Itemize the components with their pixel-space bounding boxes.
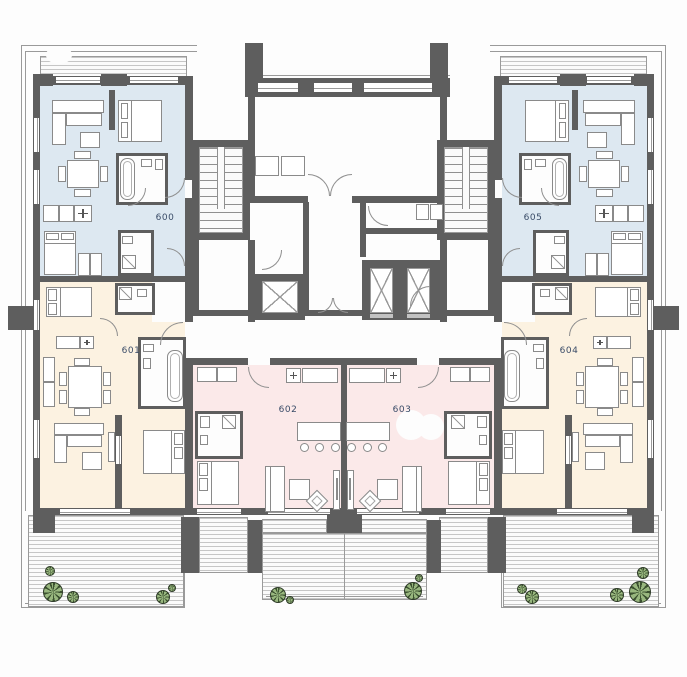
- terrace-wall: [327, 515, 362, 533]
- window: [34, 170, 39, 204]
- unit-600-label: 600: [152, 213, 178, 224]
- sink: [200, 435, 208, 445]
- toilet: [477, 416, 487, 428]
- terrace-divider-line: [344, 533, 345, 600]
- tv-unit: [572, 432, 579, 462]
- balcony-deck: [262, 519, 327, 533]
- wall-block: [8, 306, 34, 330]
- pillow: [630, 303, 639, 315]
- kitchen-counter: [302, 368, 338, 383]
- toilet: [554, 236, 565, 244]
- kitchen-counter: [43, 357, 55, 382]
- sofa: [54, 435, 67, 463]
- shower: [122, 255, 136, 269]
- outline-line: [266, 596, 423, 597]
- pillow: [199, 478, 208, 491]
- coffee-table: [587, 132, 607, 148]
- outline-line: [661, 51, 662, 511]
- sofa: [52, 100, 104, 113]
- chair: [596, 151, 613, 159]
- sink: [155, 159, 163, 170]
- outline-line: [245, 75, 450, 76]
- stove-symbol: [386, 368, 401, 383]
- closet: [217, 367, 237, 382]
- sofa: [621, 113, 635, 145]
- wardrobe: [597, 253, 609, 276]
- coffee-table: [82, 452, 102, 470]
- chair: [59, 390, 67, 404]
- chair: [620, 390, 628, 404]
- terrace-wall: [632, 515, 654, 533]
- pillow: [46, 233, 59, 240]
- outline-line: [25, 51, 26, 511]
- terrace-wall: [488, 517, 506, 573]
- bed-line: [476, 462, 477, 504]
- outline-line: [490, 51, 662, 52]
- stove-symbol: [286, 368, 301, 383]
- elevator: [370, 268, 393, 313]
- island-counter: [346, 422, 390, 441]
- window: [648, 170, 653, 204]
- rug: [289, 479, 310, 500]
- kitchen-counter: [628, 205, 644, 222]
- sofa: [585, 113, 621, 126]
- bed-line: [515, 431, 516, 473]
- pillow: [121, 122, 128, 138]
- window: [587, 77, 631, 83]
- tv: [349, 478, 351, 500]
- stair-divider: [462, 147, 470, 209]
- pillow: [479, 478, 488, 491]
- pillow: [504, 433, 513, 445]
- wardrobe: [90, 253, 102, 276]
- coffee-table: [80, 132, 100, 148]
- white-blob: [418, 414, 444, 440]
- wall: [494, 76, 502, 180]
- closet: [470, 367, 490, 382]
- chair: [58, 166, 66, 182]
- window: [34, 300, 39, 330]
- shower: [555, 287, 568, 300]
- dining-table: [67, 160, 99, 188]
- bathtub: [167, 350, 183, 402]
- pillow: [121, 103, 128, 119]
- bed-line: [131, 101, 132, 141]
- pillow: [559, 122, 566, 138]
- stool: [347, 443, 356, 452]
- floor-plan: 600 601 602 603 604 605: [0, 0, 687, 677]
- sink: [479, 435, 487, 445]
- door-arc: [330, 174, 352, 196]
- tv: [336, 478, 338, 500]
- kitchen-counter: [613, 205, 628, 222]
- wall: [439, 358, 501, 365]
- pillow: [48, 289, 57, 301]
- stove-symbol: [593, 336, 607, 349]
- wardrobe: [78, 253, 90, 276]
- closet: [430, 204, 443, 220]
- kitchen-counter: [632, 357, 644, 382]
- stove-symbol: [595, 205, 613, 222]
- unit-604-label: 604: [556, 346, 582, 357]
- balcony-deck: [360, 519, 427, 533]
- outline-line: [501, 573, 502, 608]
- wall-block: [33, 74, 53, 86]
- sink: [524, 159, 532, 170]
- stove-symbol: [80, 336, 94, 349]
- shower: [551, 255, 565, 269]
- window: [130, 77, 178, 83]
- kitchen-counter: [43, 205, 59, 222]
- window: [648, 118, 653, 152]
- rug: [377, 479, 398, 500]
- door-arc: [368, 206, 388, 226]
- wall-stub: [572, 90, 578, 130]
- wall: [352, 196, 447, 203]
- kitchen-counter: [56, 336, 80, 349]
- kitchen-counter: [607, 336, 631, 349]
- chair: [576, 390, 584, 404]
- closet: [450, 367, 470, 382]
- outline-line: [501, 607, 666, 608]
- terrace-wall: [181, 517, 199, 573]
- bed-line: [171, 431, 172, 473]
- unit-601-label: 601: [118, 346, 144, 357]
- pillow: [48, 303, 57, 315]
- elevator: [262, 281, 298, 313]
- wall-block: [653, 306, 679, 330]
- dining-table: [68, 366, 102, 408]
- bed-line: [627, 288, 628, 316]
- bed-line: [60, 288, 61, 316]
- wall: [488, 240, 495, 316]
- chair: [597, 358, 613, 366]
- closet: [197, 367, 217, 382]
- sink: [536, 358, 544, 369]
- door-arc: [262, 250, 282, 270]
- pillow: [479, 463, 488, 476]
- shower: [451, 415, 465, 429]
- wall-block: [560, 74, 586, 86]
- outline-line: [21, 607, 185, 608]
- island-counter: [297, 422, 341, 441]
- wall: [192, 240, 199, 316]
- wall-block: [634, 74, 654, 86]
- stool: [300, 443, 309, 452]
- chair: [596, 189, 613, 197]
- chair: [621, 166, 629, 182]
- wall: [440, 310, 494, 316]
- chair: [74, 151, 91, 159]
- pillow: [61, 233, 74, 240]
- wall: [496, 276, 654, 282]
- shower: [119, 287, 132, 300]
- closet: [255, 156, 279, 176]
- white-blob: [46, 46, 72, 64]
- window: [116, 436, 121, 464]
- toilet: [533, 344, 544, 352]
- tv-unit: [108, 432, 115, 462]
- window: [509, 77, 557, 83]
- chair: [59, 372, 67, 386]
- pillow: [613, 233, 626, 240]
- window: [56, 77, 100, 83]
- terrace-wall: [33, 515, 55, 533]
- kitchen-counter: [632, 382, 644, 407]
- pillow: [559, 103, 566, 119]
- chair: [579, 166, 587, 182]
- sofa: [265, 466, 285, 512]
- chair: [620, 372, 628, 386]
- sofa-line: [270, 467, 271, 511]
- sofa: [583, 100, 635, 113]
- wall: [494, 198, 502, 282]
- sofa: [583, 423, 633, 435]
- wall: [360, 228, 440, 234]
- sofa: [585, 435, 620, 447]
- shower: [222, 415, 236, 429]
- sofa: [52, 113, 66, 145]
- wall: [248, 196, 308, 203]
- window: [557, 509, 627, 514]
- sofa: [67, 435, 102, 447]
- window: [34, 118, 39, 152]
- wall-stub: [109, 90, 115, 130]
- window: [648, 300, 653, 330]
- window: [314, 83, 352, 92]
- elevator-sill: [407, 314, 430, 318]
- toilet: [122, 236, 133, 244]
- stool: [315, 443, 324, 452]
- toilet: [535, 159, 546, 167]
- wall: [185, 358, 193, 515]
- window: [648, 420, 653, 458]
- bed-line: [555, 101, 556, 141]
- chair: [103, 372, 111, 386]
- stair-divider: [217, 147, 225, 209]
- outline-line: [490, 45, 666, 46]
- wardrobe: [585, 253, 597, 276]
- dining-table: [588, 160, 620, 188]
- bed-line: [612, 243, 642, 244]
- stove-symbol: [74, 205, 92, 222]
- wall: [193, 358, 248, 365]
- pillow: [630, 289, 639, 301]
- toilet: [137, 289, 147, 297]
- pillow: [504, 447, 513, 459]
- kitchen-counter: [59, 205, 74, 222]
- door-arc: [308, 174, 330, 196]
- window: [60, 509, 130, 514]
- toilet: [141, 159, 152, 167]
- sofa: [402, 466, 422, 512]
- outline-line: [21, 45, 197, 46]
- sink: [143, 358, 151, 369]
- stool: [363, 443, 372, 452]
- chair: [597, 408, 613, 416]
- toilet: [143, 344, 154, 352]
- sofa-line: [416, 467, 417, 511]
- bed-line: [211, 462, 212, 504]
- pillow: [174, 447, 183, 459]
- chair: [100, 166, 108, 182]
- closet: [281, 156, 305, 176]
- chair: [74, 189, 91, 197]
- bed-line: [45, 243, 75, 244]
- chair: [576, 372, 584, 386]
- elevator-sill: [370, 314, 393, 318]
- wall: [494, 282, 502, 322]
- kitchen-counter: [43, 382, 55, 407]
- unit-603-label: 603: [389, 405, 415, 416]
- pillow: [174, 433, 183, 445]
- stool: [331, 443, 340, 452]
- balcony-deck: [199, 517, 248, 573]
- window: [197, 509, 241, 514]
- window: [364, 83, 432, 92]
- unit-602-label: 602: [275, 405, 301, 416]
- stool: [378, 443, 387, 452]
- terrace-wall: [427, 520, 441, 573]
- bathtub: [504, 350, 520, 402]
- unit-605-label: 605: [520, 213, 546, 224]
- sofa: [620, 435, 633, 463]
- pillow: [199, 463, 208, 476]
- wall: [270, 358, 417, 365]
- wall-block: [101, 74, 127, 86]
- entry-hall: [152, 282, 185, 322]
- dining-table: [585, 366, 619, 408]
- window: [446, 509, 490, 514]
- balcony-deck: [439, 517, 488, 573]
- chair: [103, 390, 111, 404]
- coffee-table: [585, 452, 605, 470]
- kitchen-counter: [349, 368, 385, 383]
- toilet: [200, 416, 210, 428]
- wall: [309, 310, 362, 316]
- closet: [416, 204, 429, 220]
- window: [566, 436, 571, 464]
- window: [34, 420, 39, 458]
- wall: [33, 276, 191, 282]
- window: [258, 83, 298, 92]
- wall: [193, 310, 255, 316]
- entry-hall: [502, 282, 535, 322]
- chair: [74, 408, 90, 416]
- terrace-wall: [248, 520, 262, 573]
- sofa: [66, 113, 102, 126]
- chair: [74, 358, 90, 366]
- sofa: [54, 423, 104, 435]
- pillow: [628, 233, 641, 240]
- toilet: [540, 289, 550, 297]
